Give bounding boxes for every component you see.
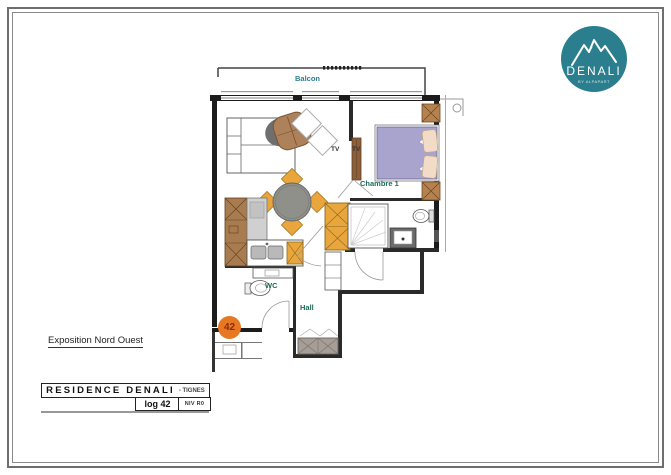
shower (348, 204, 388, 248)
unit-id-box: log 42 (135, 397, 180, 411)
logo-title: DENALI (561, 64, 627, 78)
label-tv-bedroom: TV (352, 146, 360, 153)
label-wc: WC (265, 281, 278, 290)
exposition-note: Exposition Nord Ouest (48, 335, 143, 348)
level-box: NIV R0 (178, 397, 211, 411)
neighbor-structure (212, 332, 262, 372)
unit-number-badge: 42 (218, 316, 241, 339)
floor-plan: Balcon Chambre 1 TV TV WC Hall 42 (205, 40, 470, 380)
hall-wardrobe (298, 329, 338, 354)
tv-panel (352, 138, 361, 180)
wardrobe-column (325, 203, 350, 290)
title-block: RESIDENCE DENALI - TIGNES (41, 383, 210, 398)
denali-logo: DENALI BY ALPAPART (561, 26, 627, 92)
washbasin (390, 228, 416, 248)
residence-location: - TIGNES (179, 388, 205, 394)
label-hall: Hall (300, 303, 314, 312)
label-tv-living: TV (331, 146, 339, 153)
label-bedroom: Chambre 1 (360, 179, 399, 188)
residence-name: RESIDENCE DENALI (46, 385, 175, 396)
label-balcony: Balcon (295, 74, 320, 83)
plan-sheet: DENALI BY ALPAPART (0, 0, 671, 475)
floor-plan-drawing (205, 40, 470, 380)
title-block-underline (41, 411, 209, 413)
logo-subtitle: BY ALPAPART (561, 79, 627, 84)
bed (375, 125, 439, 181)
